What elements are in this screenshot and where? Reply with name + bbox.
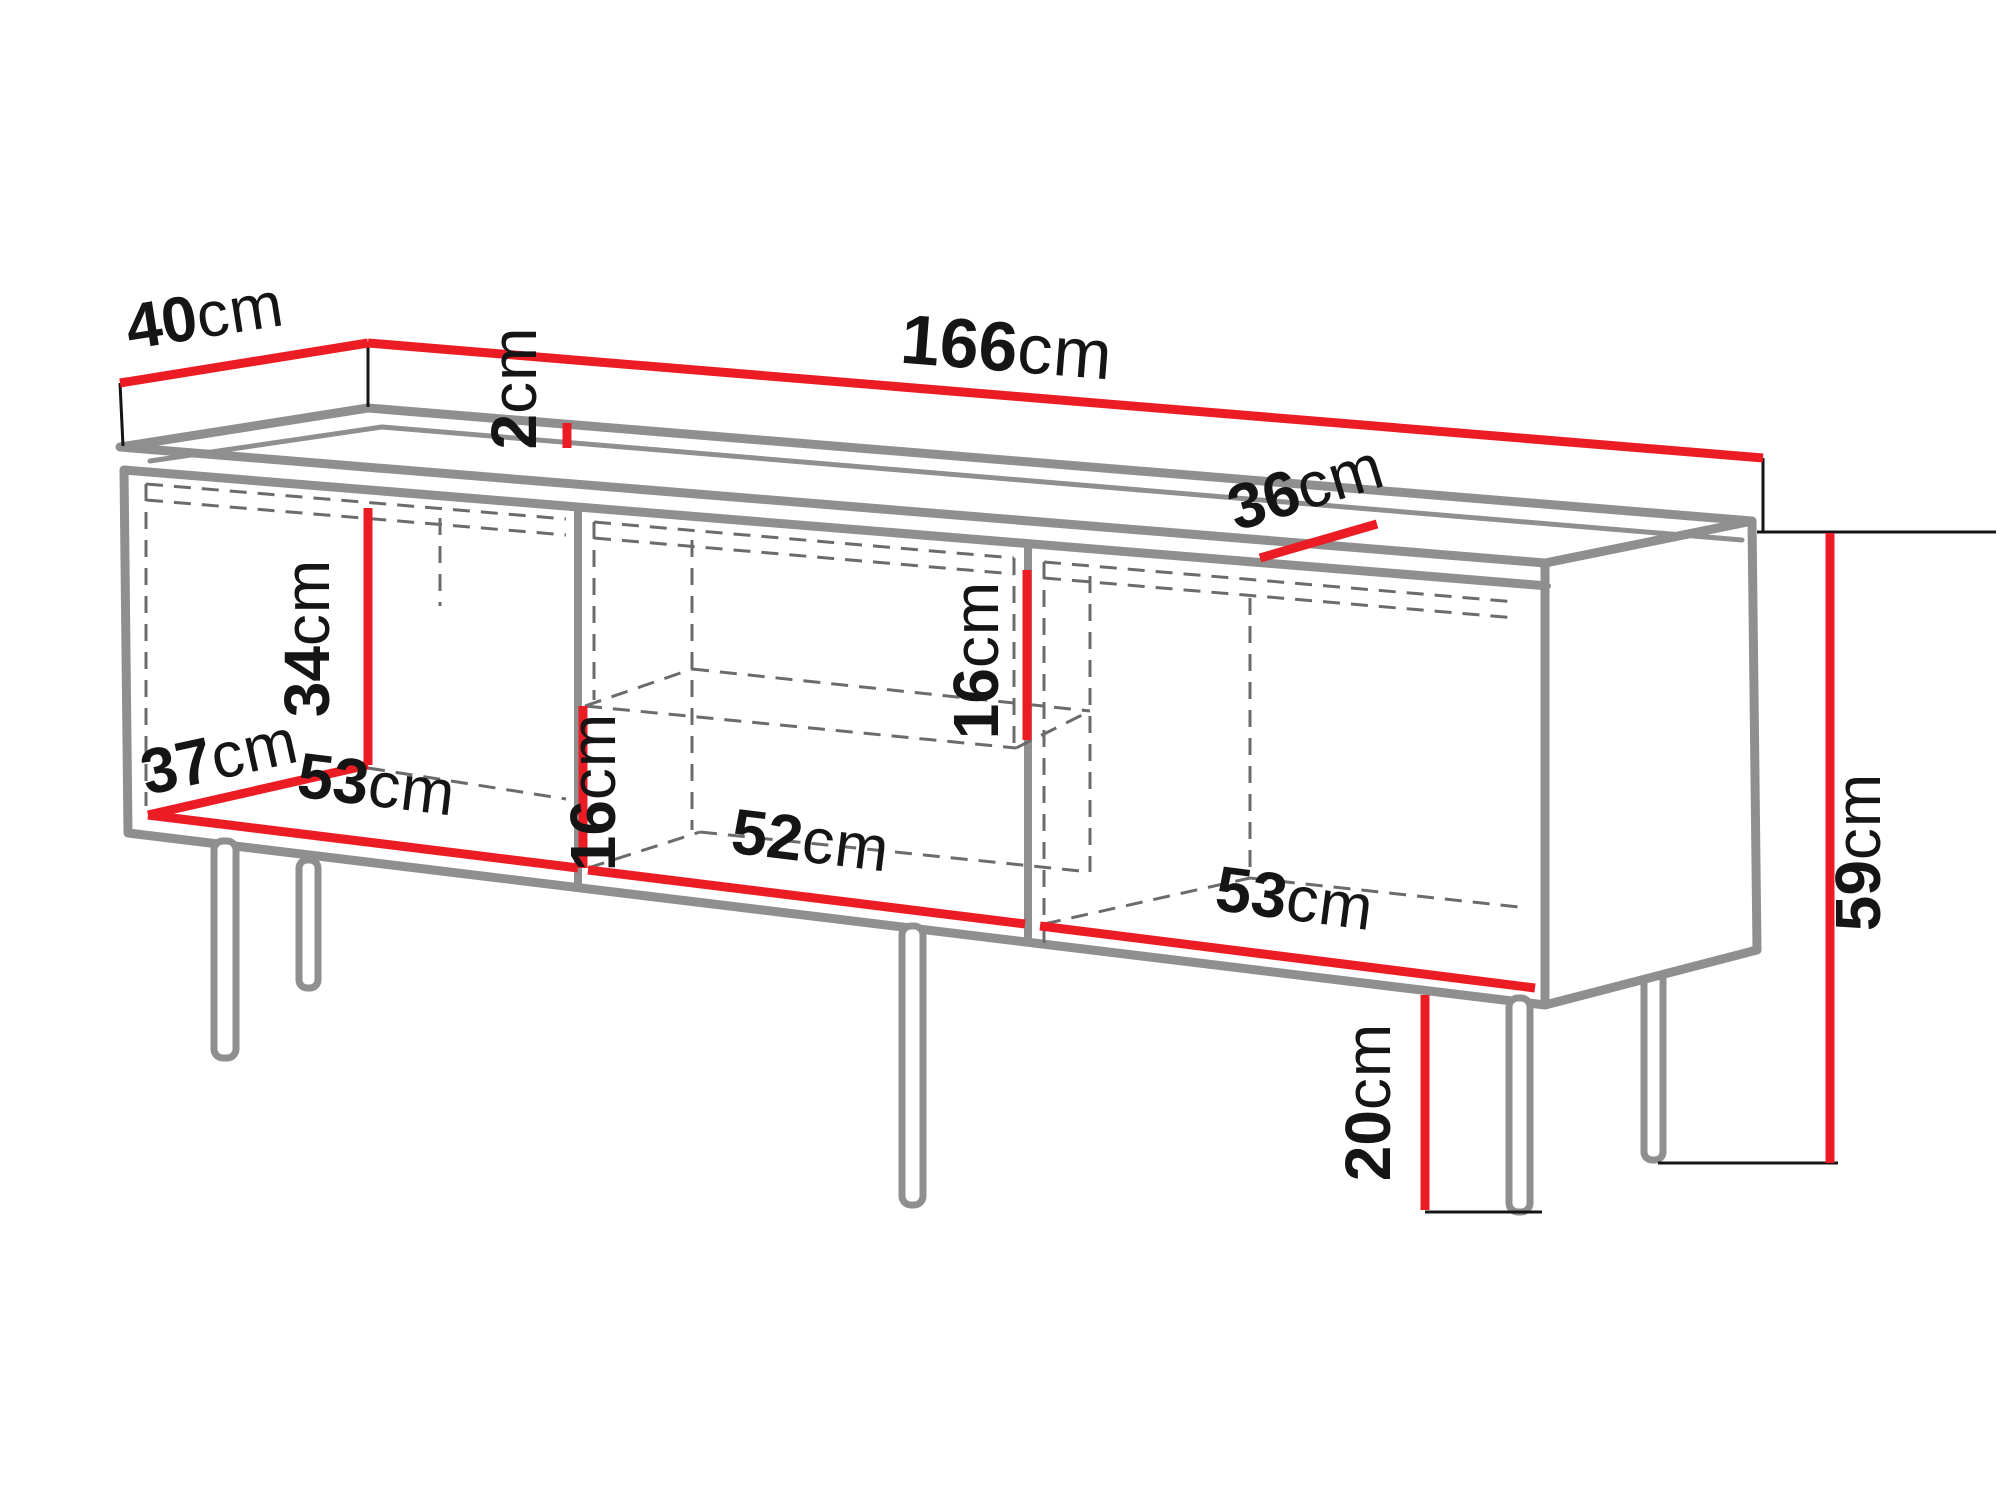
- leg-front-left: [214, 841, 236, 1058]
- leg-rear-left: [299, 860, 318, 988]
- dim-label-top-thickness: 2cm: [478, 327, 550, 450]
- dim-label-total-width: 166cm: [898, 300, 1116, 395]
- dim-label-compartment-height-upper: 16cm: [940, 581, 1012, 740]
- dim-label-compartment-height-lower: 16cm: [557, 713, 629, 872]
- cabinet-right-face: [1545, 521, 1757, 1005]
- leg-front-middle: [902, 926, 923, 1205]
- dim-label-leg-height: 20cm: [1332, 1023, 1404, 1182]
- leg-front-right: [1509, 998, 1530, 1212]
- leg-rear-right: [1644, 955, 1663, 1160]
- ext-line-depth-left: [120, 383, 123, 446]
- dim-label-total-height: 59cm: [1822, 773, 1894, 932]
- dimension-diagram: 40cm 166cm 2cm 36cm 34cm 37cm 53cm 16cm …: [0, 0, 2000, 1500]
- dim-label-interior-height-left: 34cm: [271, 559, 343, 718]
- cabinet-drawing: 40cm 166cm 2cm 36cm 34cm 37cm 53cm 16cm …: [0, 0, 2000, 1500]
- dim-label-top-depth: 40cm: [121, 267, 289, 363]
